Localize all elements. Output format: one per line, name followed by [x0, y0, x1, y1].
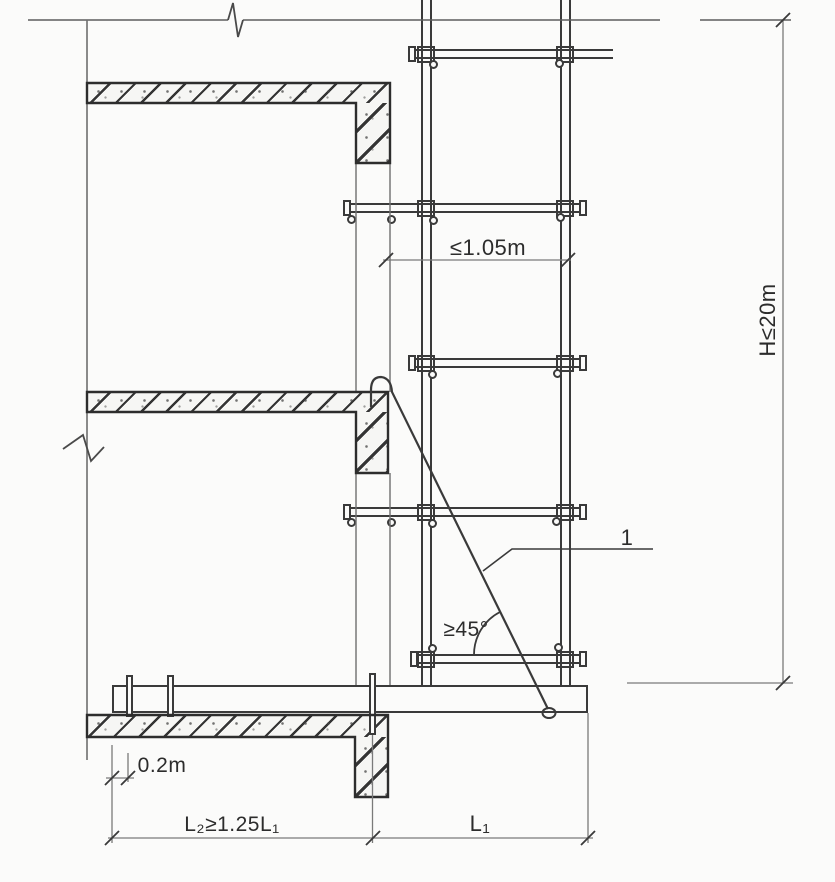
dim-label-height: H≤20m [755, 283, 781, 356]
dim-label-bay-width: ≤1.05m [450, 235, 526, 261]
break-symbol-top [228, 3, 243, 37]
callout-leader [483, 549, 653, 571]
linework-svg [0, 0, 835, 882]
dim-label-l2: L₂≥1.25L₁ [184, 813, 280, 837]
tie-rod-bottom-hook [543, 708, 556, 718]
callout-label-1: 1 [621, 525, 634, 551]
break-symbol-wall [63, 435, 104, 461]
tie-rod-diagonal [371, 377, 548, 709]
dim-label-offset: 0.2m [138, 754, 187, 778]
dim-label-l1: L₁ [470, 811, 491, 837]
drawing-canvas: ≤1.05m H≤20m 1 ≥45° 0.2m L₂≥1.25L₁ L₁ [0, 0, 835, 882]
angle-label: ≥45° [443, 618, 488, 642]
lower-slab-outline [87, 715, 388, 797]
upper-slab-outline [87, 83, 390, 163]
middle-slab-outline [87, 392, 388, 473]
